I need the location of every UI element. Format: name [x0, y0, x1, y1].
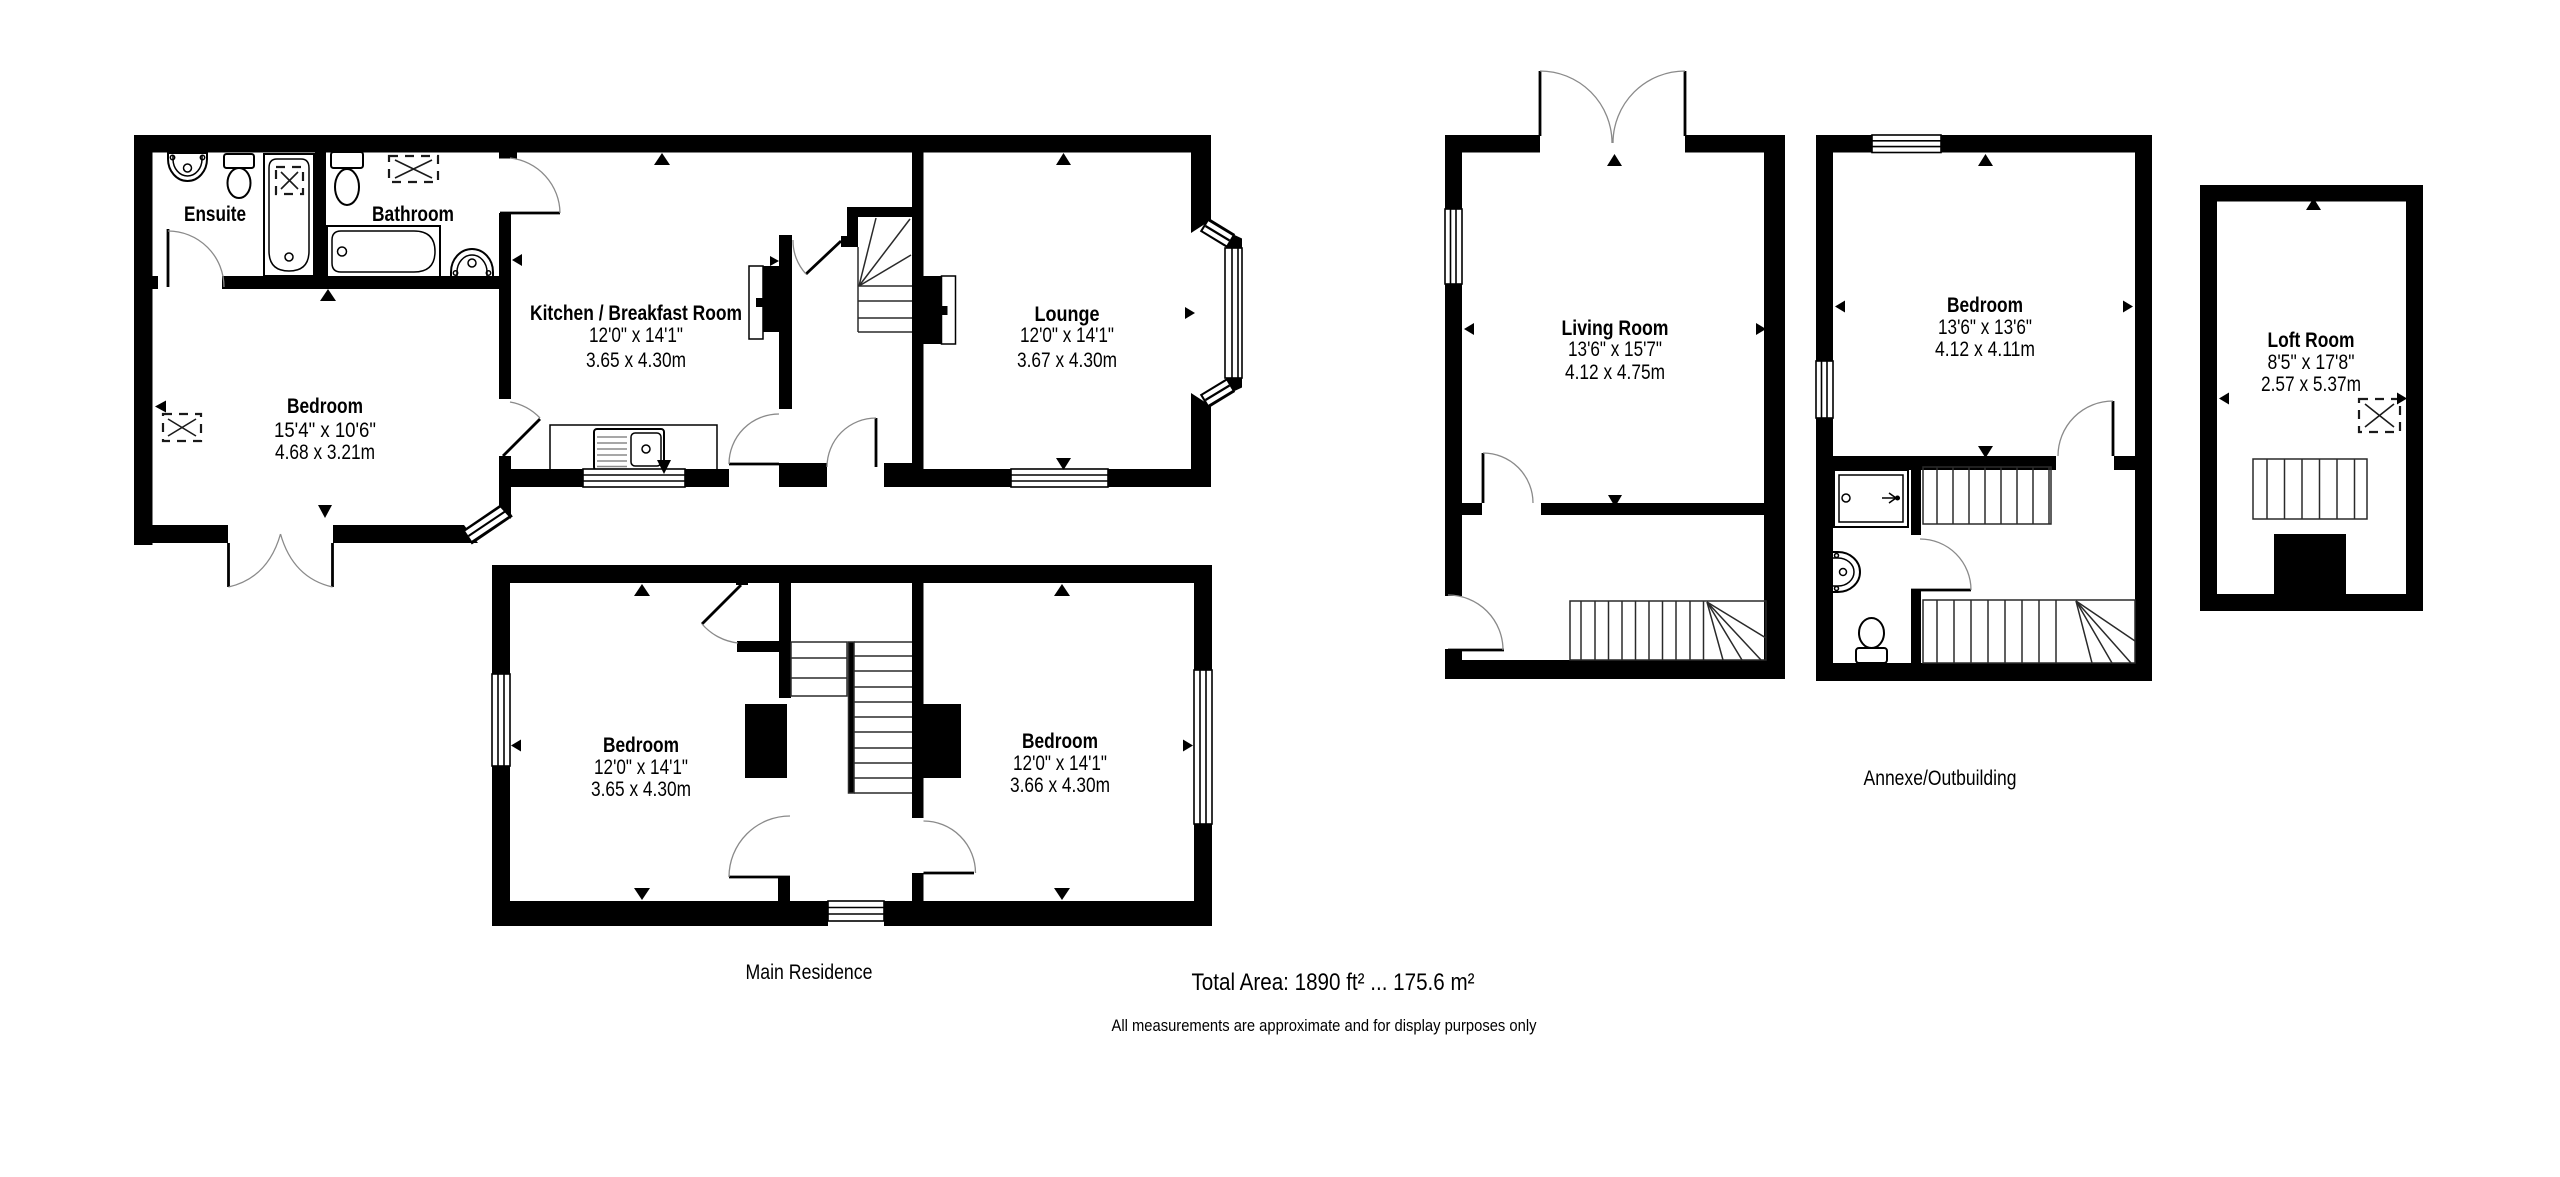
svg-text:3.67 x 4.30m: 3.67 x 4.30m: [1017, 349, 1117, 372]
svg-text:Lounge: Lounge: [1035, 303, 1100, 326]
svg-text:Bedroom: Bedroom: [1947, 294, 2023, 317]
svg-text:Living Room: Living Room: [1562, 317, 1669, 340]
svg-text:Total Area: 1890 ft² ... 175.6: Total Area: 1890 ft² ... 175.6 m²: [1192, 969, 1475, 996]
svg-text:Bedroom: Bedroom: [287, 395, 363, 418]
svg-text:8'5" x 17'8": 8'5" x 17'8": [2268, 351, 2355, 374]
svg-text:Bedroom: Bedroom: [1022, 730, 1098, 753]
svg-text:3.65 x 4.30m: 3.65 x 4.30m: [586, 349, 686, 372]
svg-text:12'0" x 14'1": 12'0" x 14'1": [589, 324, 683, 347]
svg-text:4.12 x 4.11m: 4.12 x 4.11m: [1935, 338, 2035, 361]
svg-text:Kitchen / Breakfast Room: Kitchen / Breakfast Room: [530, 302, 742, 325]
svg-text:Main Residence: Main Residence: [746, 961, 873, 984]
svg-text:12'0" x 14'1": 12'0" x 14'1": [1020, 324, 1114, 347]
svg-text:4.68 x 3.21m: 4.68 x 3.21m: [275, 441, 375, 464]
svg-text:Bedroom: Bedroom: [603, 734, 679, 757]
svg-text:13'6" x 13'6": 13'6" x 13'6": [1938, 316, 2032, 339]
svg-text:Loft Room: Loft Room: [2268, 329, 2355, 352]
svg-text:3.66 x 4.30m: 3.66 x 4.30m: [1010, 774, 1110, 797]
svg-text:4.12 x 4.75m: 4.12 x 4.75m: [1565, 361, 1665, 384]
svg-text:12'0" x 14'1": 12'0" x 14'1": [594, 756, 688, 779]
svg-text:Ensuite: Ensuite: [184, 203, 246, 226]
svg-text:12'0" x 14'1": 12'0" x 14'1": [1013, 752, 1107, 775]
svg-text:15'4" x 10'6": 15'4" x 10'6": [274, 419, 376, 442]
svg-text:All measurements are approxima: All measurements are approximate and for…: [1112, 1016, 1537, 1035]
svg-text:13'6" x 15'7": 13'6" x 15'7": [1568, 338, 1662, 361]
svg-text:3.65 x 4.30m: 3.65 x 4.30m: [591, 778, 691, 801]
svg-text:Bathroom: Bathroom: [372, 203, 454, 226]
svg-text:Annexe/Outbuilding: Annexe/Outbuilding: [1864, 767, 2017, 790]
svg-text:2.57 x 5.37m: 2.57 x 5.37m: [2261, 373, 2361, 396]
